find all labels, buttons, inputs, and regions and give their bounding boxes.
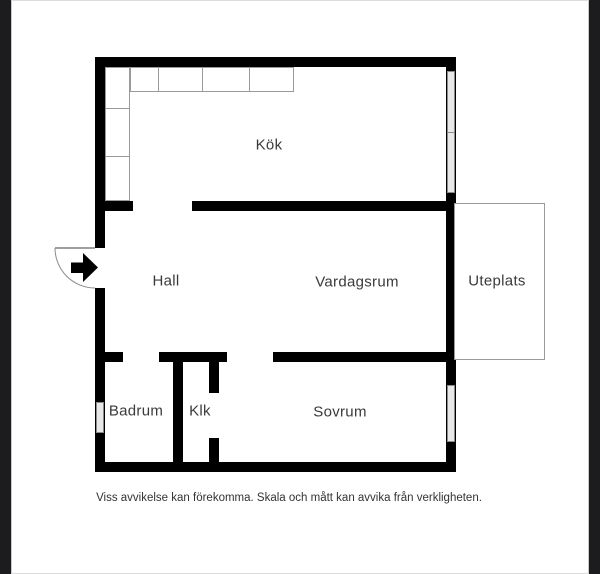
bedroom-window: [447, 385, 455, 442]
room-label-kitchen: Kök: [256, 137, 283, 154]
room-label-living-room: Vardagsrum: [315, 274, 399, 291]
entrance-arrow-icon: [68, 250, 102, 286]
kitchen-counter-top: [130, 67, 294, 92]
room-label-hall: Hall: [152, 273, 179, 290]
wall-kitchen-hall-stub: [105, 201, 133, 211]
wall-kitchen-living: [192, 201, 446, 211]
disclaimer-text: Viss avvikelse kan förekomma. Skala och …: [96, 492, 482, 504]
floorplan-image: Kök Hall Vardagsrum Uteplats Badrum Klk …: [0, 0, 600, 574]
window-mullion: [448, 132, 454, 133]
kitchen-counter-left: [105, 67, 130, 201]
kitchen-window: [447, 71, 455, 193]
wall-hall-bedroom: [273, 352, 446, 362]
letterbox-left-bar: [0, 0, 12, 574]
counter-division: [106, 108, 129, 109]
wall-outer-left-lower: [95, 288, 105, 472]
wall-outer-left-upper: [95, 57, 105, 248]
wall-outer-bottom: [95, 462, 456, 472]
wall-outer-top: [95, 57, 456, 67]
room-label-bedroom: Sovrum: [313, 404, 366, 421]
top-edge-hairline: [11, 0, 589, 1]
counter-division: [202, 68, 203, 91]
counter-division: [249, 68, 250, 91]
wall-closet-right-lower: [209, 438, 219, 462]
wall-bathroom-closet: [173, 362, 183, 462]
room-label-closet: Klk: [189, 403, 211, 420]
wall-hall-closet: [159, 352, 227, 362]
wall-hall-bathroom-stub: [105, 352, 123, 362]
room-label-bathroom: Badrum: [109, 403, 163, 420]
wall-closet-right-upper: [209, 362, 219, 393]
room-label-patio: Uteplats: [468, 273, 525, 290]
counter-division: [106, 156, 129, 157]
counter-division: [158, 68, 159, 91]
letterbox-right-bar: [588, 0, 600, 574]
bathroom-window: [96, 402, 104, 433]
